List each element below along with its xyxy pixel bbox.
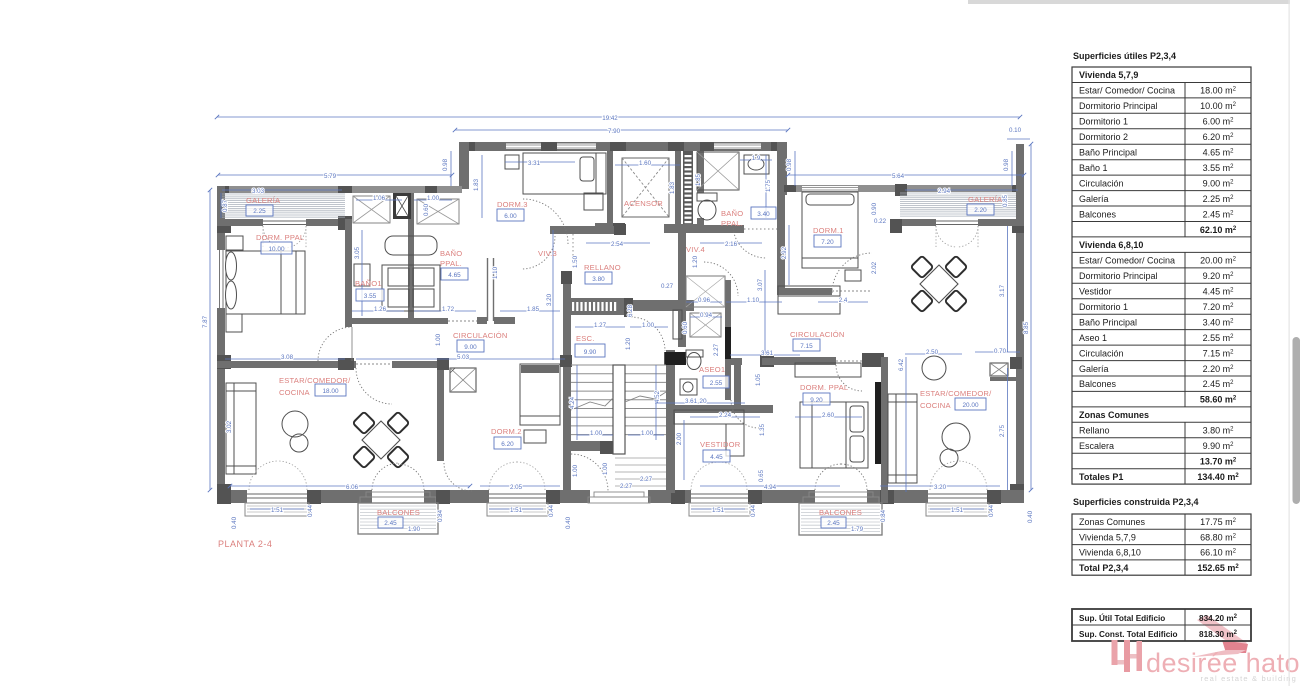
- svg-text:BAÑO: BAÑO: [721, 209, 743, 218]
- svg-text:1.83: 1.83: [473, 178, 480, 191]
- svg-text:BALCONES: BALCONES: [819, 508, 862, 517]
- svg-text:Vestidor: Vestidor: [1079, 287, 1112, 297]
- svg-text:6.00 m2: 6.00 m2: [1203, 117, 1235, 127]
- svg-text:0.65: 0.65: [758, 469, 765, 482]
- svg-text:9.20: 9.20: [810, 397, 823, 404]
- svg-text:COCINA: COCINA: [279, 388, 310, 397]
- svg-text:1.26: 1.26: [374, 306, 387, 313]
- svg-text:1.72: 1.72: [442, 306, 455, 313]
- svg-text:0.90: 0.90: [871, 202, 878, 215]
- svg-text:Dormitorio Principal: Dormitorio Principal: [1079, 271, 1158, 281]
- svg-text:7.90: 7.90: [608, 128, 621, 135]
- svg-text:3.61: 3.61: [761, 350, 774, 357]
- svg-text:Estar/ Comedor/ Cocina: Estar/ Comedor/ Cocina: [1079, 256, 1175, 266]
- svg-text:1.05: 1.05: [755, 373, 762, 386]
- svg-text:3.08: 3.08: [281, 354, 294, 361]
- svg-text:4.24: 4.24: [569, 396, 576, 409]
- svg-text:PPAL.: PPAL.: [721, 219, 743, 228]
- svg-text:1.83: 1.83: [669, 181, 676, 194]
- svg-text:GALERÍA: GALERÍA: [246, 196, 281, 205]
- svg-text:3.17: 3.17: [999, 284, 1006, 297]
- svg-text:7.20 m2: 7.20 m2: [1203, 302, 1235, 312]
- svg-text:1.9: 1.9: [752, 155, 761, 162]
- svg-text:DORM. PPAL: DORM. PPAL: [256, 233, 304, 242]
- svg-text:1.20: 1.20: [625, 337, 632, 350]
- svg-text:PLANTA 2-4: PLANTA 2-4: [218, 539, 272, 549]
- svg-text:2.27: 2.27: [640, 476, 653, 483]
- svg-text:20: 20: [699, 398, 707, 405]
- svg-text:Galería: Galería: [1079, 194, 1109, 204]
- svg-text:1.51: 1.51: [951, 507, 964, 514]
- svg-text:VESTIDOR: VESTIDOR: [700, 440, 741, 449]
- svg-text:5.79: 5.79: [324, 173, 337, 180]
- svg-text:9.00: 9.00: [464, 344, 477, 351]
- svg-text:BAÑO1: BAÑO1: [355, 279, 382, 288]
- svg-text:2.20 m2: 2.20 m2: [1203, 364, 1235, 374]
- svg-text:DORM.2: DORM.2: [491, 427, 522, 436]
- svg-text:Baño Principal: Baño Principal: [1079, 317, 1137, 327]
- svg-text:2.24: 2.24: [719, 412, 732, 419]
- svg-text:Rellano: Rellano: [1079, 426, 1110, 436]
- svg-text:GALERÍA: GALERÍA: [968, 195, 1003, 204]
- svg-text:4.94: 4.94: [764, 484, 777, 491]
- svg-text:Vivienda 5,7,9: Vivienda 5,7,9: [1079, 70, 1138, 80]
- svg-text:1.06: 1.06: [373, 195, 386, 202]
- svg-text:1.51: 1.51: [271, 507, 284, 514]
- svg-text:PPAL.: PPAL.: [440, 259, 462, 268]
- svg-text:0.60: 0.60: [423, 203, 430, 216]
- svg-text:ESC.: ESC.: [576, 334, 595, 343]
- svg-text:ACENSOR: ACENSOR: [624, 199, 663, 208]
- svg-text:Superficies construida P2,3,4: Superficies construida P2,3,4: [1073, 497, 1199, 507]
- svg-text:1.00: 1.00: [642, 322, 655, 329]
- svg-text:0.98: 0.98: [786, 158, 793, 171]
- svg-text:Balcones: Balcones: [1079, 209, 1117, 219]
- svg-text:1.50: 1.50: [572, 255, 579, 268]
- svg-text:Baño Principal: Baño Principal: [1079, 148, 1137, 158]
- svg-text:834.20 m2: 834.20 m2: [1199, 614, 1238, 623]
- svg-text:Circulación: Circulación: [1079, 178, 1124, 188]
- svg-text:0.60: 0.60: [682, 321, 689, 334]
- svg-text:Superficies útiles P2,3,4: Superficies útiles P2,3,4: [1073, 51, 1176, 61]
- svg-text:19.42: 19.42: [602, 115, 618, 122]
- svg-text:2.54: 2.54: [611, 241, 624, 248]
- svg-text:Dormitorio 2: Dormitorio 2: [1079, 132, 1128, 142]
- svg-text:2.50: 2.50: [926, 349, 939, 356]
- svg-text:Dormitorio 1: Dormitorio 1: [1079, 302, 1128, 312]
- svg-text:1.20: 1.20: [692, 255, 699, 268]
- svg-text:ASEO1: ASEO1: [699, 365, 725, 374]
- svg-text:2.16: 2.16: [725, 241, 738, 248]
- svg-text:Totales P1: Totales P1: [1079, 472, 1123, 482]
- svg-text:0.87: 0.87: [222, 199, 229, 212]
- svg-text:1.79: 1.79: [851, 526, 864, 533]
- svg-text:0.44: 0.44: [548, 504, 555, 517]
- svg-text:3.55: 3.55: [364, 293, 377, 300]
- svg-text:Sup. Útil Total Edificio: Sup. Útil Total Edificio: [1079, 612, 1165, 623]
- svg-text:3.55 m2: 3.55 m2: [1203, 163, 1235, 173]
- svg-text:2.45 m2: 2.45 m2: [1203, 209, 1235, 219]
- svg-text:Total P2,3,4: Total P2,3,4: [1079, 563, 1128, 573]
- svg-text:9.20 m2: 9.20 m2: [1203, 271, 1235, 281]
- svg-text:6.20: 6.20: [501, 441, 514, 448]
- svg-text:1.27: 1.27: [594, 322, 607, 329]
- svg-text:Escalera: Escalera: [1079, 441, 1114, 451]
- svg-text:3.20: 3.20: [934, 484, 947, 491]
- svg-text:9.90: 9.90: [584, 349, 597, 356]
- svg-text:Vivienda 6,8,10: Vivienda 6,8,10: [1079, 548, 1141, 558]
- svg-text:18.00: 18.00: [323, 388, 339, 395]
- svg-text:1.00: 1.00: [435, 333, 442, 346]
- svg-text:1.00: 1.00: [590, 430, 603, 437]
- svg-text:RELLANO: RELLANO: [584, 263, 621, 272]
- svg-text:0.84: 0.84: [437, 509, 444, 522]
- svg-text:Vivienda 6,8,10: Vivienda 6,8,10: [1079, 240, 1143, 250]
- svg-text:3.02: 3.02: [226, 420, 233, 433]
- svg-text:7.20: 7.20: [821, 239, 834, 246]
- svg-text:Vivienda 5,7,9: Vivienda 5,7,9: [1079, 532, 1136, 542]
- svg-text:2.45 m2: 2.45 m2: [1203, 379, 1235, 389]
- svg-text:6.06: 6.06: [346, 484, 359, 491]
- svg-text:20.00 m2: 20.00 m2: [1200, 256, 1237, 266]
- svg-text:Dormitorio Principal: Dormitorio Principal: [1079, 101, 1158, 111]
- svg-text:0.94: 0.94: [700, 312, 713, 319]
- svg-text:2.25: 2.25: [253, 208, 266, 215]
- svg-text:2.02: 2.02: [871, 261, 878, 274]
- svg-text:7.15 m2: 7.15 m2: [1203, 348, 1235, 358]
- svg-text:4.45: 4.45: [710, 454, 723, 461]
- svg-text:8.85: 8.85: [1023, 321, 1030, 334]
- svg-text:68.80 m2: 68.80 m2: [1200, 532, 1237, 542]
- svg-text:1.60: 1.60: [639, 160, 652, 167]
- svg-text:0.84: 0.84: [880, 509, 887, 522]
- svg-text:3.05: 3.05: [354, 246, 361, 259]
- svg-text:2.92: 2.92: [781, 246, 788, 259]
- svg-text:18.00 m2: 18.00 m2: [1200, 86, 1237, 96]
- svg-text:3.40 m2: 3.40 m2: [1203, 317, 1235, 327]
- svg-text:DORM.3: DORM.3: [497, 200, 528, 209]
- svg-text:VIV.3: VIV.3: [538, 249, 557, 258]
- svg-text:1.51: 1.51: [712, 507, 725, 514]
- svg-text:1.75: 1.75: [765, 179, 772, 192]
- svg-text:134.40 m2: 134.40 m2: [1197, 472, 1239, 482]
- svg-text:1.10: 1.10: [492, 266, 499, 279]
- svg-text:3.31: 3.31: [528, 160, 541, 167]
- svg-text:10.00 m2: 10.00 m2: [1200, 101, 1237, 111]
- svg-text:2.4: 2.4: [839, 297, 848, 304]
- svg-text:9.00 m2: 9.00 m2: [1203, 178, 1235, 188]
- svg-text:BALCONES: BALCONES: [377, 508, 420, 517]
- svg-text:Estar/ Comedor/ Cocina: Estar/ Comedor/ Cocina: [1079, 86, 1175, 96]
- svg-text:3.03: 3.03: [252, 188, 265, 195]
- svg-text:2.25 m2: 2.25 m2: [1203, 194, 1235, 204]
- svg-text:0.70: 0.70: [994, 348, 1007, 355]
- svg-text:Zonas Comunes: Zonas Comunes: [1079, 517, 1146, 527]
- svg-text:BAÑO: BAÑO: [440, 249, 462, 258]
- svg-text:2.27: 2.27: [713, 343, 720, 356]
- svg-text:2.27: 2.27: [620, 483, 633, 490]
- svg-text:4.45 m2: 4.45 m2: [1203, 287, 1235, 297]
- svg-text:6.42: 6.42: [898, 358, 905, 371]
- svg-text:Sup. Const. Total Edificio: Sup. Const. Total Edificio: [1079, 630, 1178, 639]
- svg-text:7.87: 7.87: [202, 315, 209, 328]
- svg-text:1.00: 1.00: [572, 464, 579, 477]
- svg-text:COCINA: COCINA: [920, 401, 951, 410]
- svg-text:3.61: 3.61: [685, 398, 698, 405]
- svg-text:Zonas Comunes: Zonas Comunes: [1079, 410, 1149, 420]
- svg-text:0.27: 0.27: [661, 283, 674, 290]
- svg-text:3.80 m2: 3.80 m2: [1203, 426, 1235, 436]
- svg-text:0.40: 0.40: [565, 516, 572, 529]
- svg-text:1.35: 1.35: [759, 423, 766, 436]
- svg-text:CIRCULACIÓN: CIRCULACIÓN: [453, 331, 508, 340]
- svg-text:Aseo 1: Aseo 1: [1079, 333, 1107, 343]
- svg-text:2.55 m2: 2.55 m2: [1203, 333, 1235, 343]
- svg-text:2.94: 2.94: [938, 188, 951, 195]
- svg-text:0.98: 0.98: [1003, 158, 1010, 171]
- svg-text:Dormitorio 1: Dormitorio 1: [1079, 117, 1128, 127]
- svg-text:4.52: 4.52: [654, 390, 661, 403]
- svg-text:10.00: 10.00: [269, 246, 285, 253]
- svg-text:6.28: 6.28: [627, 304, 634, 317]
- svg-text:2.55: 2.55: [710, 380, 723, 387]
- svg-text:5.64: 5.64: [892, 173, 905, 180]
- svg-text:3.40: 3.40: [757, 211, 770, 218]
- svg-text:0.85: 0.85: [1002, 194, 1009, 207]
- svg-text:3.20: 3.20: [546, 293, 553, 306]
- svg-text:0.96: 0.96: [698, 297, 711, 304]
- svg-text:66.10 m2: 66.10 m2: [1200, 548, 1237, 558]
- svg-text:ESTAR/COMEDOR/: ESTAR/COMEDOR/: [920, 389, 992, 398]
- svg-text:2.75: 2.75: [999, 424, 1006, 437]
- svg-text:1.10: 1.10: [747, 297, 760, 304]
- svg-text:Galería: Galería: [1079, 364, 1109, 374]
- svg-text:1.00: 1.00: [602, 462, 609, 475]
- svg-text:62.10 m2: 62.10 m2: [1200, 225, 1237, 235]
- svg-text:1.00: 1.00: [427, 195, 440, 202]
- svg-text:1.85: 1.85: [527, 306, 540, 313]
- svg-text:818.30 m2: 818.30 m2: [1199, 630, 1238, 639]
- svg-text:0.44: 0.44: [307, 504, 314, 517]
- svg-text:2.20: 2.20: [974, 207, 987, 214]
- svg-text:DORM. PPAL: DORM. PPAL: [800, 383, 848, 392]
- svg-text:20.00: 20.00: [963, 402, 979, 409]
- svg-text:VIV.4: VIV.4: [686, 245, 705, 254]
- svg-text:CIRCULACIÓN: CIRCULACIÓN: [790, 330, 845, 339]
- svg-text:Baño 1: Baño 1: [1079, 163, 1108, 173]
- svg-text:0.40: 0.40: [231, 516, 238, 529]
- svg-text:0.44: 0.44: [988, 504, 995, 517]
- svg-text:6.00: 6.00: [504, 213, 517, 220]
- svg-text:152.65 m2: 152.65 m2: [1197, 563, 1239, 573]
- svg-text:4.65 m2: 4.65 m2: [1203, 148, 1235, 158]
- svg-text:6.20 m2: 6.20 m2: [1203, 132, 1235, 142]
- svg-text:1.00: 1.00: [641, 430, 654, 437]
- svg-text:7.15: 7.15: [800, 343, 813, 350]
- svg-text:2.60: 2.60: [822, 412, 835, 419]
- svg-text:13.70 m2: 13.70 m2: [1200, 457, 1237, 467]
- svg-text:3.07: 3.07: [757, 278, 764, 291]
- svg-text:2.05: 2.05: [510, 484, 523, 491]
- svg-text:1.51: 1.51: [510, 507, 523, 514]
- svg-text:4.65: 4.65: [448, 272, 461, 279]
- svg-text:1.85: 1.85: [695, 173, 702, 186]
- svg-text:2.00: 2.00: [676, 432, 683, 445]
- svg-text:3.80: 3.80: [592, 276, 605, 283]
- svg-text:0.22: 0.22: [874, 218, 887, 225]
- svg-text:Circulación: Circulación: [1079, 348, 1124, 358]
- svg-text:9.90 m2: 9.90 m2: [1203, 441, 1235, 451]
- svg-text:real estate & building: real estate & building: [1201, 674, 1297, 683]
- svg-text:DORM.1: DORM.1: [813, 226, 844, 235]
- svg-text:58.60 m2: 58.60 m2: [1200, 395, 1237, 405]
- svg-text:1.90: 1.90: [408, 526, 421, 533]
- svg-text:0.98: 0.98: [442, 158, 449, 171]
- svg-text:0.10: 0.10: [1009, 127, 1022, 134]
- svg-text:5.03: 5.03: [457, 354, 470, 361]
- svg-text:Balcones: Balcones: [1079, 379, 1117, 389]
- svg-text:2.45: 2.45: [827, 520, 840, 527]
- svg-text:17.75 m2: 17.75 m2: [1200, 517, 1237, 527]
- svg-text:0.44: 0.44: [750, 504, 757, 517]
- svg-text:2.45: 2.45: [384, 520, 397, 527]
- svg-text:0.40: 0.40: [1027, 510, 1034, 523]
